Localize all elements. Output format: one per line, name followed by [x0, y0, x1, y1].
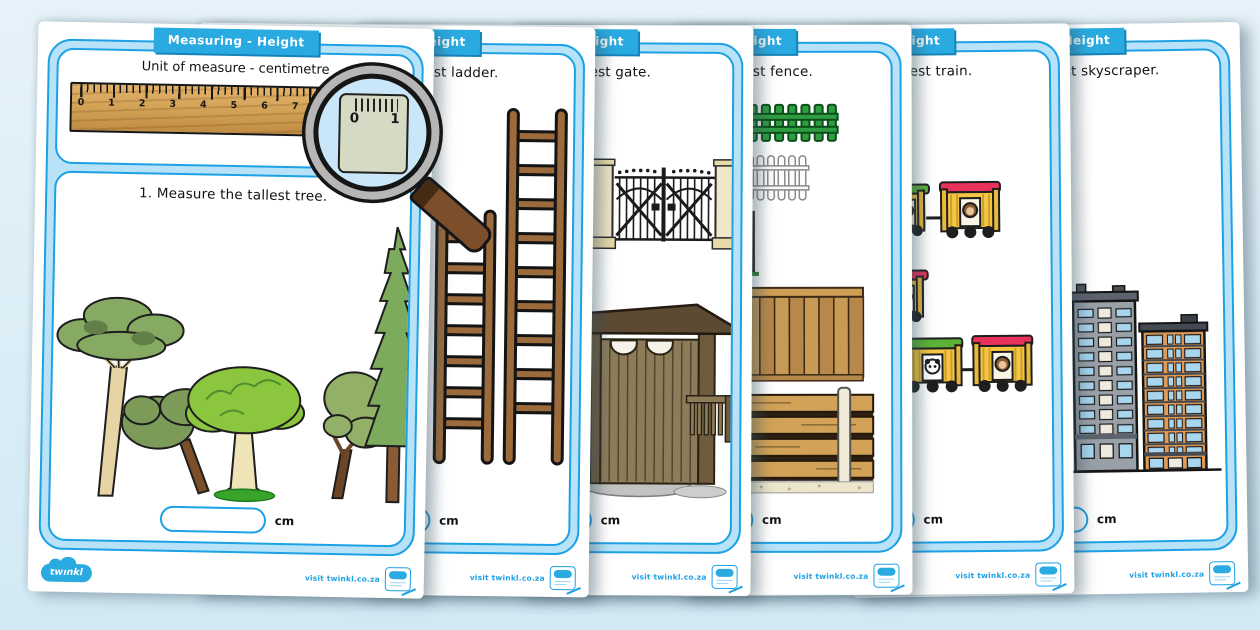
footer-right: visit twinkl.co.za	[632, 564, 738, 589]
twinkl-logo: twinkl	[41, 563, 92, 582]
twinkl-badge-icon	[385, 567, 411, 591]
twinkl-badge-icon	[712, 565, 738, 589]
page-footer: twinkl visit twinkl.co.za	[41, 558, 411, 593]
trees-illustration	[52, 215, 412, 517]
unit-label: cm	[762, 513, 782, 527]
magnified-ruler-numbers: 01	[350, 110, 400, 127]
footer-right: visit twinkl.co.za	[793, 564, 899, 588]
skyscrapers-illustration	[1062, 264, 1228, 487]
visit-url-label: visit twinkl.co.za	[955, 570, 1030, 580]
twinkl-badge-icon	[550, 566, 576, 590]
unit-label: cm	[275, 514, 295, 528]
footer-right: visit twinkl.co.za	[1129, 561, 1235, 587]
visit-url-label: visit twinkl.co.za	[470, 572, 545, 582]
twinkl-badge-icon	[873, 564, 899, 588]
footer-right: visit twinkl.co.za	[305, 565, 411, 591]
answer-input[interactable]	[159, 506, 265, 534]
twinkl-badge-icon	[1035, 562, 1061, 586]
unit-label: cm	[439, 514, 459, 528]
footer-right: visit twinkl.co.za	[470, 565, 576, 590]
page-title-banner: Measuring - Height	[154, 27, 319, 55]
task-panel: 1. Measure the tallest tree.	[48, 171, 413, 548]
footer-right: visit twinkl.co.za	[955, 562, 1061, 587]
unit-label: cm	[923, 512, 943, 526]
visit-url-label: visit twinkl.co.za	[793, 571, 868, 580]
visit-url-label: visit twinkl.co.za	[632, 572, 707, 581]
twinkl-badge-icon	[1209, 561, 1235, 585]
unit-label: cm	[1097, 512, 1117, 526]
ladders-illustration	[424, 82, 576, 474]
answer-row: cm	[50, 504, 404, 537]
worksheet-page-tree: Measuring - Height Unit of measure - cen…	[28, 21, 435, 598]
fences-illustration	[741, 92, 894, 532]
trains-illustration	[895, 165, 1055, 427]
page-title: Measuring - Height	[168, 33, 305, 50]
unit-label: cm	[601, 513, 621, 527]
worksheet-preview-stage: Measuring - Height 6. Measure the talles…	[0, 0, 1260, 630]
visit-url-label: visit twinkl.co.za	[1129, 569, 1204, 579]
magnified-ruler-section: 01	[338, 93, 410, 174]
visit-url-label: visit twinkl.co.za	[305, 573, 380, 583]
gates-illustration	[580, 137, 734, 508]
